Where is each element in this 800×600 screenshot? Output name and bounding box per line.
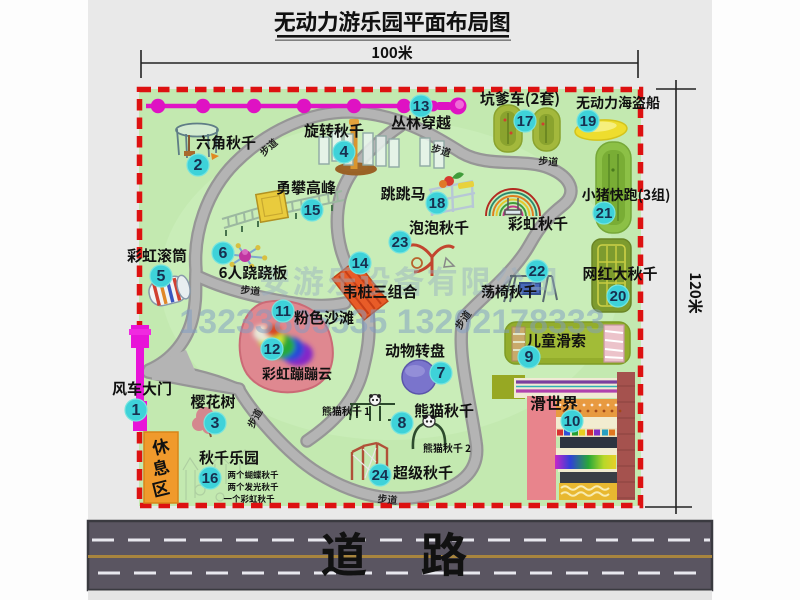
svg-text:19: 19 (580, 113, 597, 130)
svg-text:彩虹秋千: 彩虹秋千 (508, 213, 568, 234)
svg-text:网红大秋千: 网红大秋千 (582, 263, 657, 284)
svg-text:12: 12 (264, 341, 281, 358)
svg-text:熊猫秋千: 熊猫秋千 (414, 400, 474, 421)
svg-text:步道: 步道 (240, 281, 261, 298)
svg-text:韦桩三组合: 韦桩三组合 (342, 281, 417, 302)
svg-text:步道: 步道 (377, 490, 398, 507)
svg-text:荡椅秋千: 荡椅秋千 (481, 282, 537, 302)
svg-text:超级秋千: 超级秋千 (393, 462, 453, 483)
svg-text:樱花树: 樱花树 (190, 391, 235, 412)
svg-text:1: 1 (132, 402, 141, 419)
svg-text:一个彩虹秋千: 一个彩虹秋千 (223, 493, 275, 505)
svg-text:2: 2 (194, 157, 203, 174)
svg-text:13: 13 (413, 98, 430, 115)
svg-text:6: 6 (219, 245, 228, 262)
svg-text:熊猫秋千 2: 熊猫秋千 2 (423, 440, 471, 455)
svg-text:旋转秋千: 旋转秋千 (304, 120, 364, 141)
svg-text:9: 9 (525, 349, 534, 366)
svg-text:3: 3 (211, 415, 220, 432)
svg-text:粉色沙滩: 粉色沙滩 (294, 307, 354, 328)
svg-text:21: 21 (596, 205, 613, 222)
svg-text:5: 5 (157, 268, 166, 285)
svg-text:秋千乐园: 秋千乐园 (199, 447, 259, 468)
svg-text:动物转盘: 动物转盘 (385, 340, 445, 361)
svg-text:17: 17 (517, 113, 534, 130)
svg-text:无动力游乐园平面布局图: 无动力游乐园平面布局图 (274, 5, 511, 37)
svg-text:15: 15 (304, 202, 321, 219)
svg-text:23: 23 (392, 234, 409, 251)
svg-text:风车大门: 风车大门 (112, 378, 172, 399)
svg-text:22: 22 (529, 263, 546, 280)
svg-text:4: 4 (340, 144, 349, 161)
svg-text:两个蝴蝶秋千: 两个蝴蝶秋千 (227, 469, 279, 481)
svg-text:小猪快跑(3组): 小猪快跑(3组) (582, 185, 671, 205)
svg-text:跳跳马: 跳跳马 (380, 183, 425, 204)
svg-text:10: 10 (564, 413, 581, 430)
svg-text:24: 24 (372, 467, 389, 484)
svg-text:道: 道 (321, 517, 368, 586)
svg-text:8: 8 (398, 415, 407, 432)
svg-text:16: 16 (202, 470, 219, 487)
svg-text:步道: 步道 (538, 152, 559, 168)
svg-text:20: 20 (610, 288, 627, 305)
svg-text:彩虹蹦蹦云: 彩虹蹦蹦云 (262, 364, 332, 384)
svg-text:11: 11 (275, 303, 291, 320)
svg-text:100米: 100米 (371, 42, 413, 63)
svg-text:彩虹滚筒: 彩虹滚筒 (127, 245, 187, 266)
svg-text:7: 7 (437, 365, 446, 382)
svg-text:熊猫秋千 1: 熊猫秋千 1 (322, 403, 370, 418)
svg-text:泡泡秋千: 泡泡秋千 (409, 217, 469, 238)
svg-text:18: 18 (429, 195, 446, 212)
svg-text:坑爹车(2套): 坑爹车(2套) (480, 88, 560, 109)
svg-text:14: 14 (352, 255, 369, 272)
svg-text:勇攀高峰: 勇攀高峰 (276, 177, 336, 198)
svg-text:两个发光秋千: 两个发光秋千 (227, 481, 279, 493)
svg-text:120米: 120米 (685, 272, 706, 314)
svg-text:六角秋千: 六角秋千 (196, 132, 256, 153)
svg-text:6人跷跷板: 6人跷跷板 (219, 262, 288, 283)
svg-text:路: 路 (421, 517, 468, 586)
